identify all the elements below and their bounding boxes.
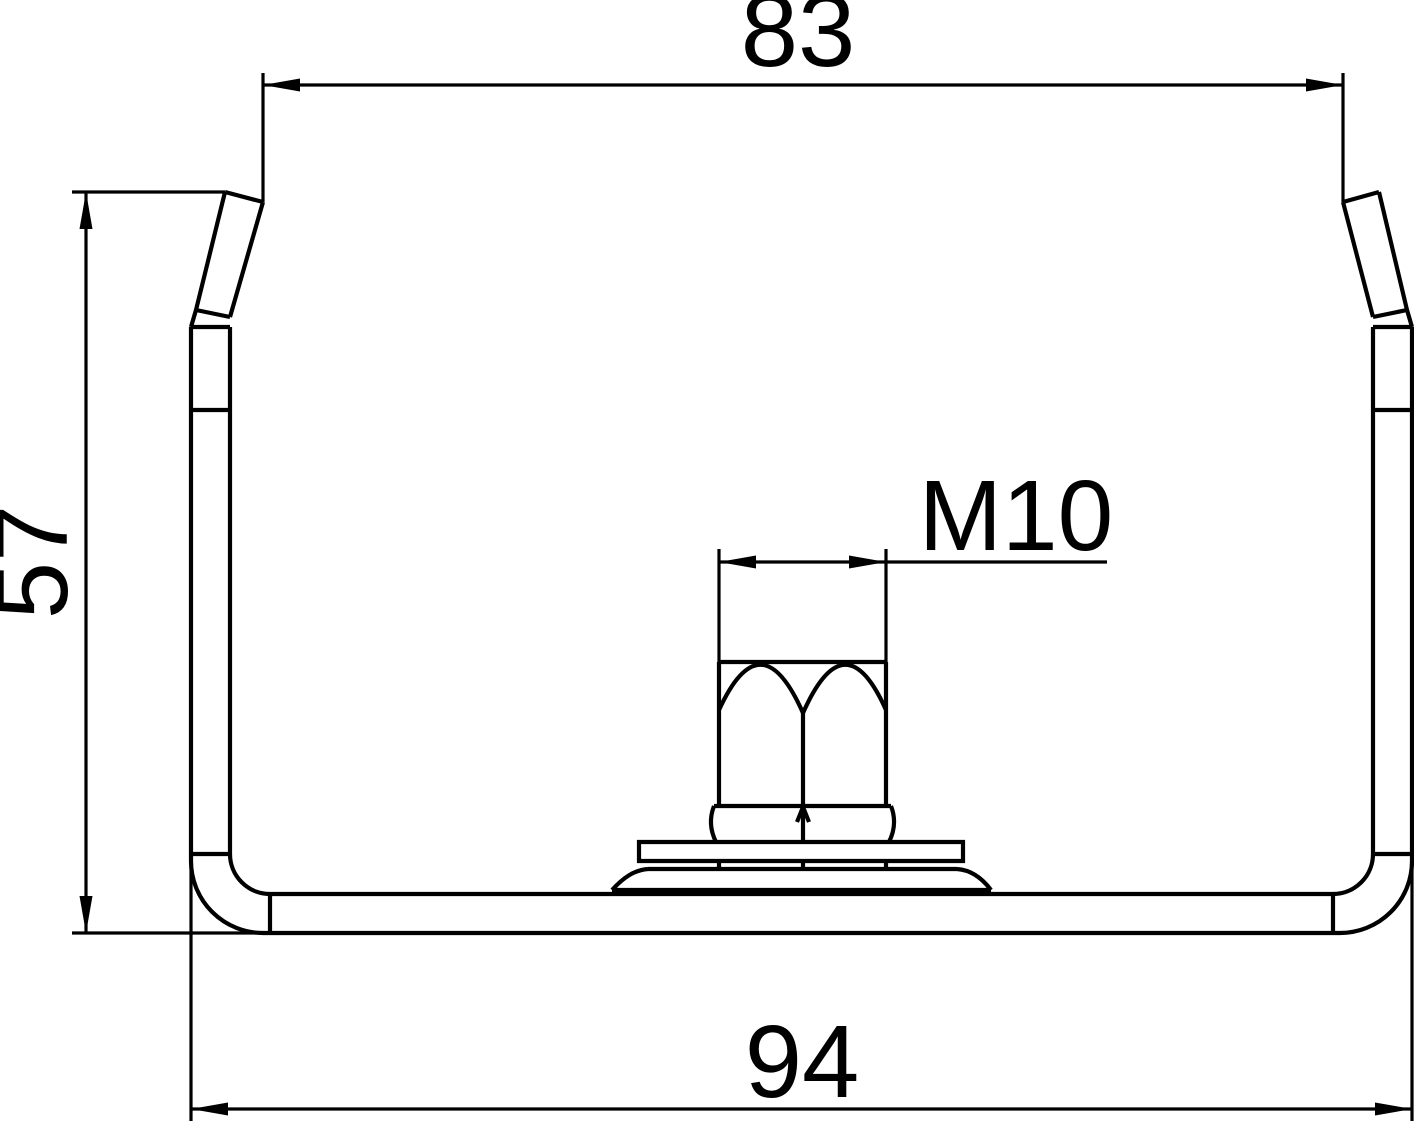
dimension-thread: M10	[719, 460, 1113, 662]
left-wall	[191, 327, 230, 861]
right-lip-bend-tick	[1373, 310, 1407, 317]
nut-chamfer-arc-right	[803, 665, 886, 713]
washer-plate	[639, 842, 963, 869]
technical-drawing: 83 57 94 M10	[0, 0, 1414, 1123]
nut-chamfer-arc-left	[719, 665, 803, 713]
left-lip-top-face	[225, 192, 263, 202]
right-lip-outer-edge	[1379, 192, 1412, 327]
right-inner-radius-arc	[1333, 854, 1373, 894]
right-outer-radius-arc	[1340, 861, 1412, 933]
dimM10-label: M10	[919, 460, 1114, 572]
dimension-left-height: 57	[0, 192, 263, 933]
dimension-bottom-width: 94	[191, 861, 1412, 1121]
washer-outline	[639, 842, 963, 861]
left-inner-radius-arc	[230, 854, 270, 894]
dim94-arrow-right	[1375, 1103, 1412, 1116]
right-lip	[1343, 192, 1412, 327]
dim94-label: 94	[745, 1004, 860, 1119]
dim57-arrow-bottom	[80, 896, 93, 933]
channel-floor	[263, 894, 1340, 933]
dim83-label: 83	[741, 0, 856, 88]
dim57-arrow-top	[80, 192, 93, 229]
floor-embossment	[612, 869, 991, 890]
right-lip-inner-edge	[1343, 202, 1373, 317]
bolt-assembly	[639, 662, 963, 869]
dim83-arrow-right	[1306, 79, 1343, 92]
left-lip	[191, 192, 263, 327]
right-wall	[1373, 327, 1412, 861]
dimension-top-width: 83	[263, 0, 1343, 202]
embossment-right-shoulder	[957, 869, 991, 890]
dim94-arrow-left	[191, 1103, 228, 1116]
bottom-right-corner	[1333, 854, 1412, 933]
dim83-arrow-left	[263, 79, 300, 92]
right-lip-top-face	[1343, 192, 1379, 202]
collar-left-bulge	[711, 806, 716, 842]
left-lip-outer-edge	[191, 192, 225, 327]
collar-right-bulge	[889, 806, 894, 842]
drawing-canvas: 83 57 94 M10	[0, 0, 1414, 1123]
bottom-left-corner	[191, 854, 270, 933]
dim57-label: 57	[0, 505, 89, 620]
left-lip-bend-tick	[196, 310, 230, 317]
embossment-left-shoulder	[612, 869, 648, 890]
dimM10-arrow-left	[719, 556, 756, 569]
hex-nut	[719, 662, 886, 842]
left-outer-radius-arc	[191, 861, 263, 933]
left-lip-inner-edge	[230, 202, 263, 317]
dimM10-arrow-right	[849, 556, 886, 569]
